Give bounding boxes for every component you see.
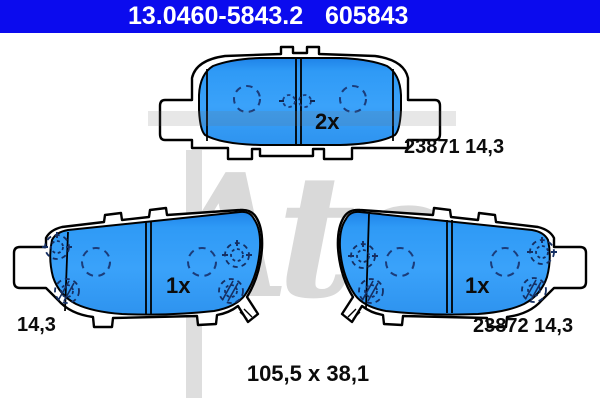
quantity-label-top: 2x <box>315 109 339 135</box>
part-number-top: 23871 14,3 <box>404 136 504 159</box>
pad-top-view <box>160 47 440 159</box>
quantity-label-left: 1x <box>166 273 190 299</box>
thickness-label-left: 14,3 <box>17 314 56 337</box>
friction-pad <box>199 58 401 145</box>
reference-number: 13.0460-5843.2 <box>128 0 303 33</box>
article-number: 605843 <box>325 0 408 33</box>
header-bar: 13.0460-5843.2 605843 <box>0 0 600 33</box>
technical-drawing <box>0 0 600 400</box>
quantity-label-right: 1x <box>465 273 489 299</box>
pad-bottom-left-view <box>14 208 262 327</box>
dimensions-label: 105,5 x 38,1 <box>0 361 600 387</box>
brake-pad-catalog-image: 13.0460-5843.2 605843 Ate <box>0 0 600 400</box>
pad-bottom-right-view <box>338 208 586 327</box>
part-number-right: 23872 14,3 <box>473 315 573 338</box>
watermark-band <box>148 111 456 126</box>
